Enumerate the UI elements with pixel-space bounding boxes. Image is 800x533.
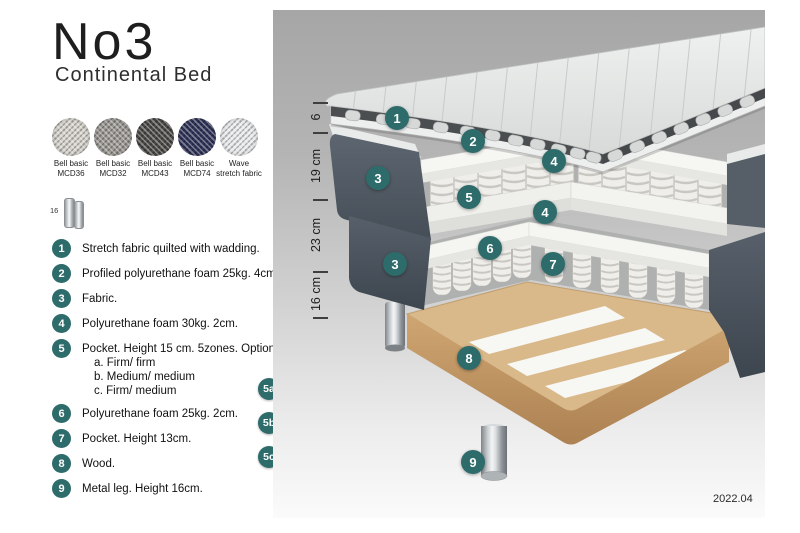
callout-8: 8 bbox=[457, 346, 481, 370]
version-label: 2022.04 bbox=[713, 493, 753, 505]
callout-6: 6 bbox=[478, 236, 502, 260]
fabric-swatch-mcd36: Bell basicMCD36 bbox=[50, 118, 92, 178]
ruler-tick bbox=[313, 199, 328, 201]
dimension-label-topper: 6 bbox=[309, 97, 325, 137]
callout-4b: 4 bbox=[533, 200, 557, 224]
part-number-badge: 5 bbox=[52, 339, 71, 358]
part-number-badge: 9 bbox=[52, 479, 71, 498]
callout-4a: 4 bbox=[542, 149, 566, 173]
callout-5: 5 bbox=[457, 185, 481, 209]
part-number-badge: 2 bbox=[52, 264, 71, 283]
fabric-swatch-mcd32: Bell basicMCD32 bbox=[92, 118, 134, 178]
part-text: Pocket. Height 13cm. bbox=[82, 429, 191, 448]
ruler-tick bbox=[313, 317, 328, 319]
part-number-badge: 8 bbox=[52, 454, 71, 473]
swatch-name: Bell basic bbox=[138, 159, 172, 169]
callout-3b: 3 bbox=[383, 252, 407, 276]
fabric-swatch-wave: Wavestretch fabric bbox=[218, 118, 260, 178]
fabric-swatch-mcd74: Bell basicMCD74 bbox=[176, 118, 218, 178]
part-item-4: 4 Polyurethane foam 30kg. 2cm. bbox=[52, 314, 297, 333]
part-text: Polyurethane foam 30kg. 2cm. bbox=[82, 314, 238, 333]
fabric-swatch-icon bbox=[178, 118, 216, 156]
part-text: Wood. bbox=[82, 454, 115, 473]
part-text: Metal leg. Height 16cm. bbox=[82, 479, 203, 498]
part-text-main: Pocket. Height 15 cm. 5zones. Option: bbox=[82, 342, 278, 356]
dimension-label-leg: 16 cm bbox=[309, 274, 325, 314]
part-option-c: c. Firm/ medium bbox=[94, 384, 278, 398]
part-item-3: 3 Fabric. bbox=[52, 289, 297, 308]
part-item-1: 1 Stretch fabric quilted with wadding. bbox=[52, 239, 297, 258]
part-number-badge: 6 bbox=[52, 404, 71, 423]
swatch-name: Wave bbox=[216, 159, 262, 169]
part-text: Polyurethane foam 25kg. 2cm. bbox=[82, 404, 238, 423]
part-number-badge: 1 bbox=[52, 239, 71, 258]
metal-leg-icon: 16 bbox=[50, 194, 96, 232]
diagram-panel: 6 19 cm 23 cm 16 cm 1 2 4 3 5 4 6 3 7 8 … bbox=[273, 10, 765, 518]
page-subtitle: Continental Bed bbox=[55, 64, 212, 87]
part-item-9: 9 Metal leg. Height 16cm. bbox=[52, 479, 297, 498]
callout-3a: 3 bbox=[366, 166, 390, 190]
swatch-code: stretch fabric bbox=[216, 169, 262, 179]
callout-2: 2 bbox=[461, 129, 485, 153]
fabric-swatch-icon bbox=[94, 118, 132, 156]
swatch-code: MCD36 bbox=[54, 169, 88, 179]
swatch-code: MCD74 bbox=[180, 169, 214, 179]
bed-cutaway-illustration bbox=[273, 10, 765, 518]
part-number-badge: 4 bbox=[52, 314, 71, 333]
leg-height-label: 16 bbox=[50, 206, 58, 215]
part-number-badge: 3 bbox=[52, 289, 71, 308]
part-text: Stretch fabric quilted with wadding. bbox=[82, 239, 260, 258]
ruler-tick bbox=[313, 271, 328, 273]
leg-cylinder-icon bbox=[74, 201, 84, 229]
part-options: a. Firm/ firm b. Medium/ medium c. Firm/… bbox=[94, 356, 278, 398]
fabric-swatch-icon bbox=[52, 118, 90, 156]
swatch-name: Bell basic bbox=[96, 159, 130, 169]
swatch-name: Bell basic bbox=[180, 159, 214, 169]
swatch-code: MCD43 bbox=[138, 169, 172, 179]
part-item-2: 2 Profiled polyurethane foam 25kg. 4cm. bbox=[52, 264, 297, 283]
fabric-swatch-mcd43: Bell basicMCD43 bbox=[134, 118, 176, 178]
fabric-swatch-icon bbox=[136, 118, 174, 156]
dimension-label-mattress: 19 cm bbox=[309, 146, 325, 186]
part-option-a: a. Firm/ firm bbox=[94, 356, 278, 370]
part-option-b: b. Medium/ medium bbox=[94, 370, 278, 384]
dimension-label-box: 23 cm bbox=[309, 215, 325, 255]
swatch-code: MCD32 bbox=[96, 169, 130, 179]
page-title: No3 bbox=[52, 12, 156, 72]
fabric-swatches: Bell basicMCD36 Bell basicMCD32 Bell bas… bbox=[50, 118, 260, 178]
swatch-name: Bell basic bbox=[54, 159, 88, 169]
part-text: Fabric. bbox=[82, 289, 117, 308]
part-text: Profiled polyurethane foam 25kg. 4cm. bbox=[82, 264, 279, 283]
fabric-swatch-icon bbox=[220, 118, 258, 156]
callout-7: 7 bbox=[541, 252, 565, 276]
part-text: Pocket. Height 15 cm. 5zones. Option: a.… bbox=[82, 339, 278, 398]
callout-1: 1 bbox=[385, 106, 409, 130]
callout-9: 9 bbox=[461, 450, 485, 474]
part-number-badge: 7 bbox=[52, 429, 71, 448]
